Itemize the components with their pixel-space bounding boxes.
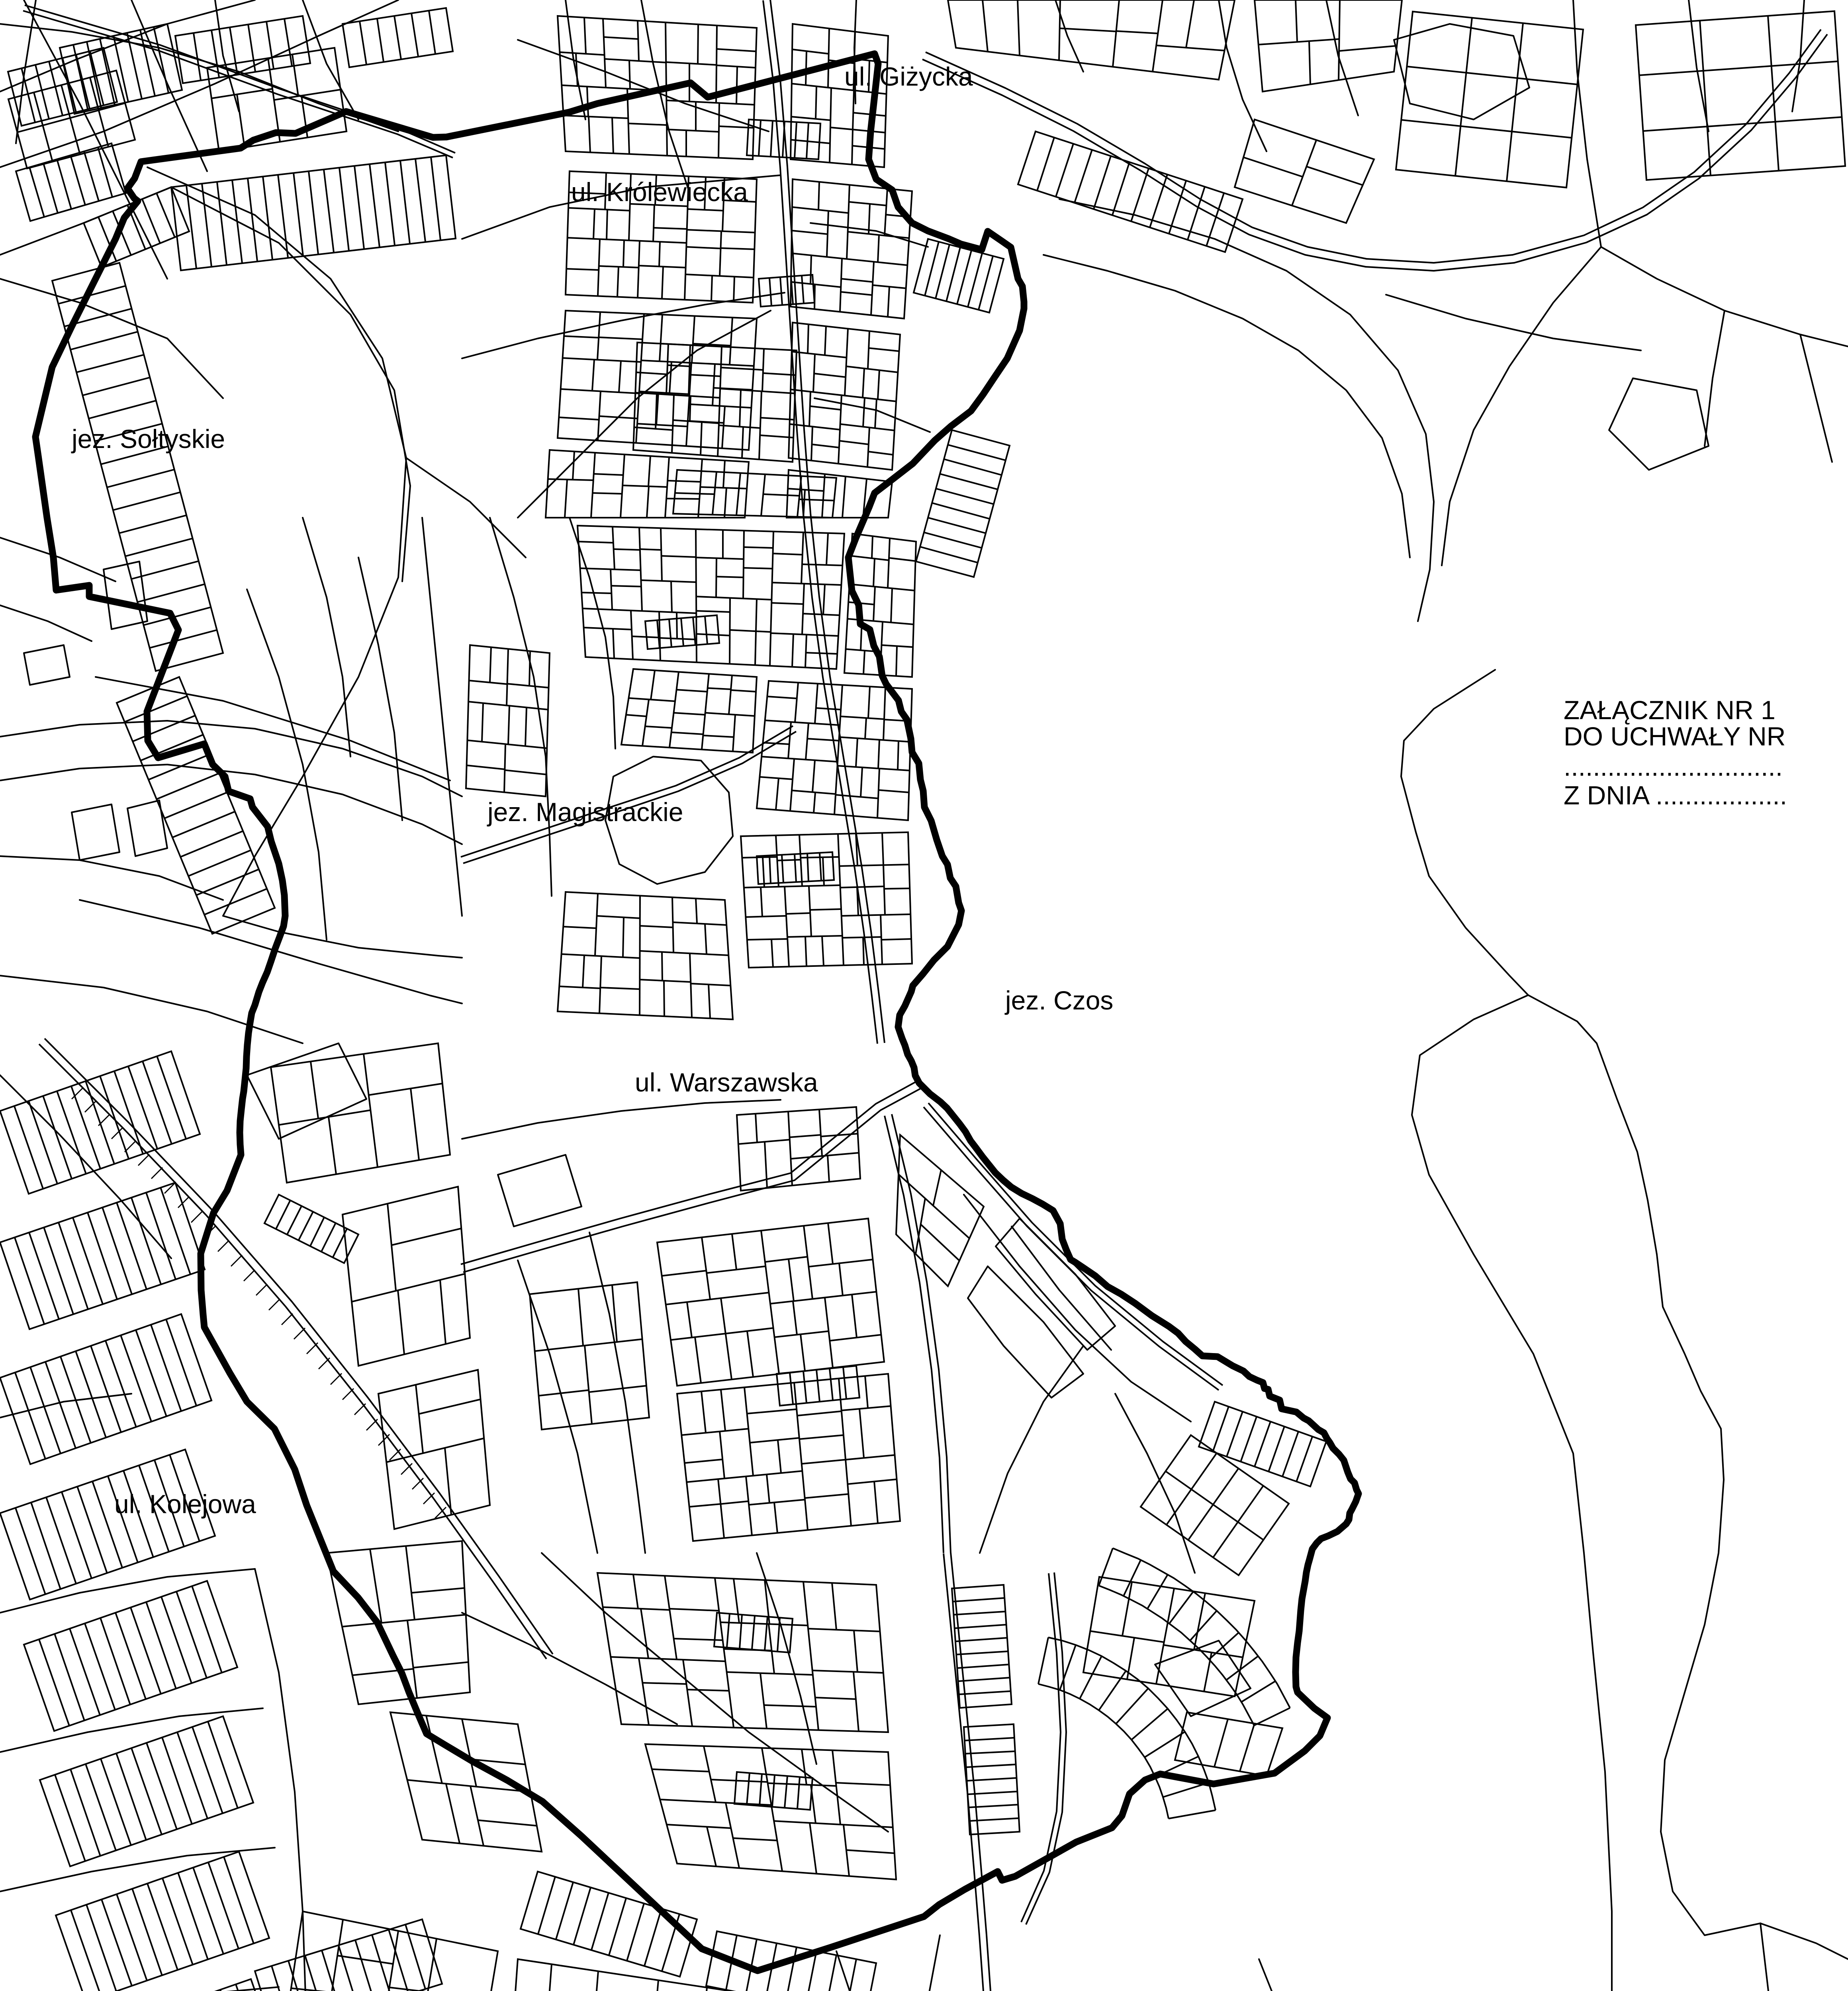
svg-text:..............................: .............................. [1564,752,1783,781]
svg-text:ul. Królewiecka: ul. Królewiecka [571,177,748,207]
svg-text:ul. Giżycka: ul. Giżycka [844,62,973,91]
svg-text:ul. Warszawska: ul. Warszawska [635,1068,818,1097]
svg-text:DO UCHWAŁY NR: DO UCHWAŁY NR [1564,722,1785,751]
svg-text:Z DNIA ..................: Z DNIA .................. [1564,780,1787,810]
svg-text:ZAŁĄCZNIK NR 1: ZAŁĄCZNIK NR 1 [1564,695,1776,725]
svg-text:jez. Sołtyskie: jez. Sołtyskie [71,424,225,454]
svg-text:jez. Magistrackie: jez. Magistrackie [487,797,683,827]
svg-text:ul. Kolejowa: ul. Kolejowa [114,1489,256,1519]
svg-text:jez. Czos: jez. Czos [1004,986,1113,1015]
